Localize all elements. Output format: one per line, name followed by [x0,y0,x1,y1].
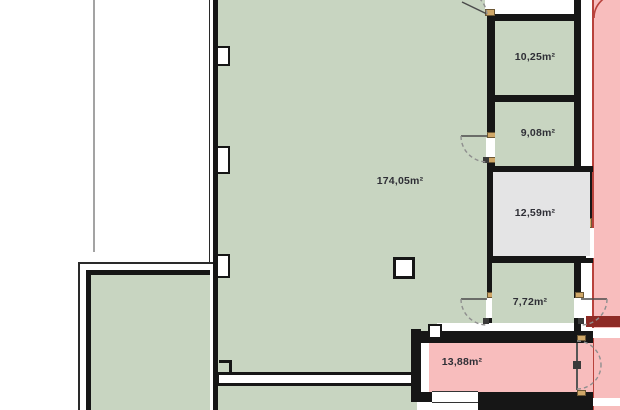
door-jamb [577,390,586,396]
wall-outline-vertical-2 [78,262,80,410]
wall-right-column-right [574,0,581,172]
pink-zone-opening-upper [592,328,620,338]
pink-zone-opening-lower [592,398,620,406]
wall-pink-room-top [421,331,593,343]
door-jamb [577,335,586,341]
wall-outline-vertical [209,0,210,263]
column-symbol [393,257,415,279]
pink-zone-strip [594,0,620,410]
room-label-13-88: 13,88m² [412,357,512,368]
wall-niche-pink-room [428,324,442,339]
door-opening-pink-room-bottom [432,391,478,403]
wall-niche-2 [216,146,230,174]
dark-red-wall-segment [586,316,620,327]
wall-step-vertical [229,360,232,375]
room-label-7-72: 7,72m² [480,297,580,308]
room-label-living: 174,05m² [350,176,450,187]
room-living [213,0,492,375]
door-hinge [483,157,489,163]
wall-divider-3 [487,256,593,263]
room-label-9-08: 9,08m² [488,128,588,139]
wall-outline-horizontal [78,262,214,264]
wall-niche-3 [216,254,230,278]
room-bottom-left [86,270,210,410]
room-label-10-25: 10,25m² [485,52,585,63]
wall-segment [213,375,219,383]
wall-divider-1 [495,95,575,102]
room-7-72 [492,263,574,325]
door-hinge [578,318,584,324]
room-bottom-band [213,383,417,410]
floor-plan: 174,05m² 10,25m² 9,08m² 12,59m² 7,72m² [0,0,620,410]
corridor-gap [437,323,574,331]
door-hinge [483,318,489,324]
wall-top-10-25 [495,14,575,21]
pink-room-inner-gap [421,343,429,392]
room-label-12-59: 12,59m² [485,208,585,219]
door-jamb [485,9,495,16]
door-hinge [573,361,581,369]
boundary-guide-line [93,0,95,252]
wall-bottom-edge [478,402,593,410]
wall-niche-1 [216,46,230,66]
